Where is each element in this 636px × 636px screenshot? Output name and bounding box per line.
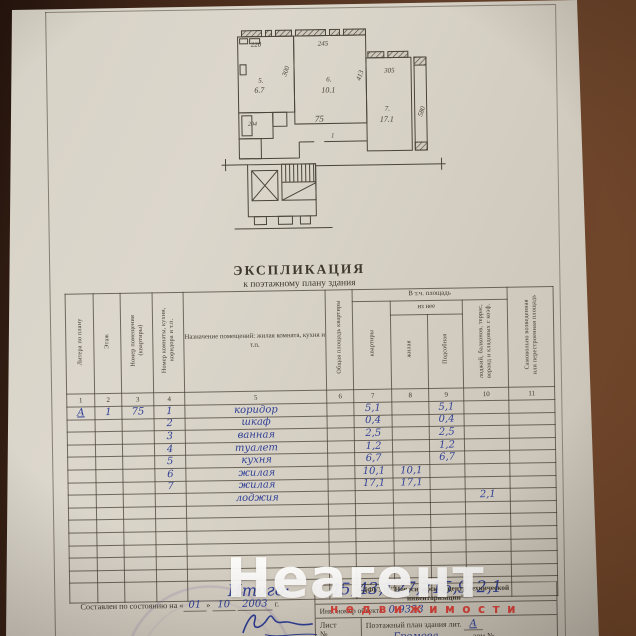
corridor-number: 1 (331, 132, 334, 139)
red-apartment-mark: 75 (315, 114, 325, 124)
dim-220: 220 (251, 41, 262, 49)
inventory-number-value: 0-9353 (388, 604, 423, 616)
column-header-purpose: Назначение помещений: жилая комната, кух… (183, 290, 327, 392)
room6-area: 10.1 (321, 85, 335, 94)
room7-area: 17.1 (380, 115, 394, 124)
litera-value: А (67, 407, 95, 420)
room6-number: 6. (326, 75, 332, 83)
column-header-floor: Этаж (93, 293, 122, 393)
composed-day: 01 (183, 600, 206, 612)
dim-413: 413 (355, 69, 366, 82)
column-header-loggia-area: лоджий, балконов, террас, веранд и кладо… (462, 299, 508, 388)
dim-300: 300 (280, 65, 291, 79)
dim-305: 305 (383, 66, 395, 74)
signature (237, 608, 321, 636)
sheet-frame-top (45, 4, 555, 13)
room5-area: 6.7 (254, 86, 265, 95)
dim-245: 245 (318, 40, 329, 48)
group-header-of-it: из нее (390, 300, 462, 315)
street-value: Громова (387, 631, 444, 636)
room5-number: 5. (258, 77, 264, 85)
column-header-utility-area: Подсобная (427, 314, 463, 388)
floor-plan-drawing: 220 245 305 300 413 580 204 5. 6.7 6. 10… (217, 22, 450, 238)
column-header-living-area: жилая (390, 315, 428, 389)
plan-title-cell: Поэтажный план здания лит. А по ул. Гром… (362, 615, 557, 636)
dim-204: 204 (248, 121, 257, 128)
explication-title: ЭКСПЛИКАЦИЯ к поэтажному плану здания (169, 260, 429, 291)
column-header-litera: Литера по плану (65, 294, 95, 394)
sheet-frame-left (45, 12, 56, 636)
sheet-cell: Лист № (316, 618, 362, 636)
apartment-number-value: 75 (122, 406, 154, 419)
plan-litera-value: А (463, 618, 483, 630)
column-header-unauthorized: Самовольно возведенная или перестроенная… (507, 287, 555, 388)
room7-number: 7. (385, 105, 391, 113)
floor-value: 1 (95, 406, 122, 419)
column-header-apartment-area: квартиры (352, 301, 391, 390)
composed-month: 10 (212, 599, 235, 611)
column-header-total-area: Общая площадь квартиры (325, 290, 354, 390)
column-header-apartment-number: Номер помещения (квартиры) (120, 293, 154, 393)
explication-table: Литера по плану Этаж Номер помещения (кв… (65, 286, 559, 604)
column-header-room-number: Номер комнаты, кухни, коридора и т.п. (152, 292, 185, 392)
dim-580: 580 (416, 105, 427, 118)
footer-title-block: ДФГУП "Новосибирский центр технической и… (314, 581, 558, 636)
document-paper: 220 245 305 300 413 580 204 5. 6.7 6. 10… (0, 0, 636, 636)
